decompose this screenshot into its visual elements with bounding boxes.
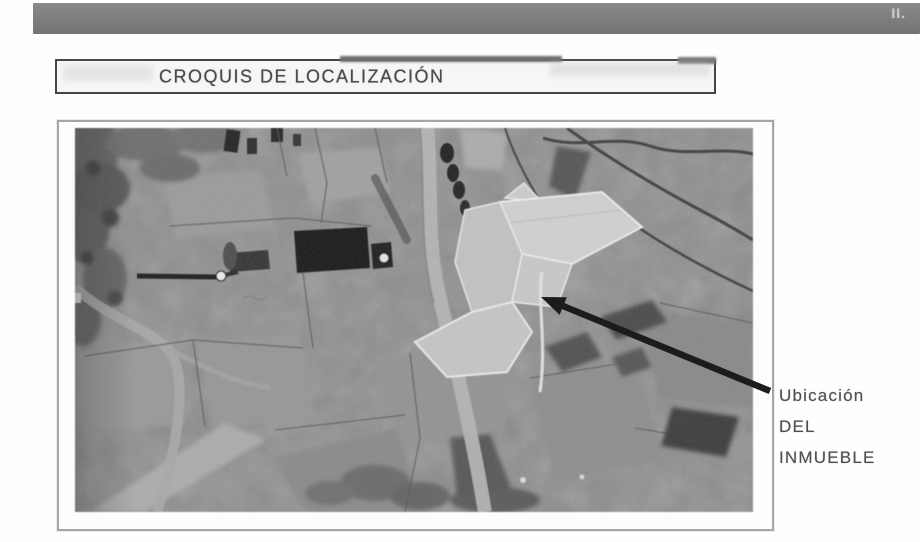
scan-smudge [340,56,562,62]
annotation-line-3: INMUEBLE [779,442,876,473]
annotation-line-2: DEL [779,411,876,442]
aerial-photo [75,128,753,512]
title-box: CROQUIS DE LOCALIZACIÓN [55,59,716,94]
header-bar: II. [33,3,920,34]
annotation-line-1: Ubicación [779,380,876,411]
location-annotation: Ubicación DEL INMUEBLE [779,380,876,473]
page-title: CROQUIS DE LOCALIZACIÓN [159,66,445,87]
scan-smudge [550,63,710,76]
map-frame [57,120,774,531]
header-mark: II. [891,5,906,21]
scan-smudge [63,65,153,81]
